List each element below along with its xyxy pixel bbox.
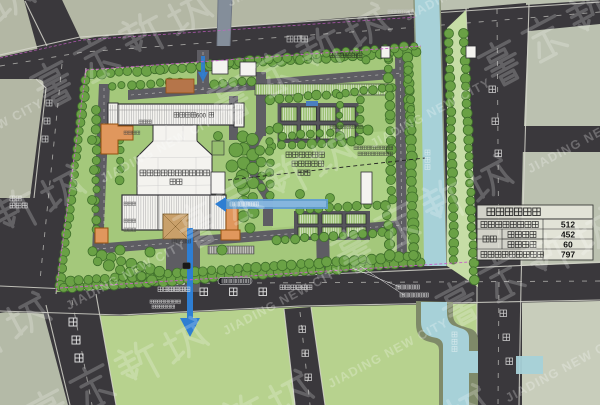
svg-text:512: 512: [561, 220, 575, 230]
svg-text:60: 60: [563, 240, 573, 250]
